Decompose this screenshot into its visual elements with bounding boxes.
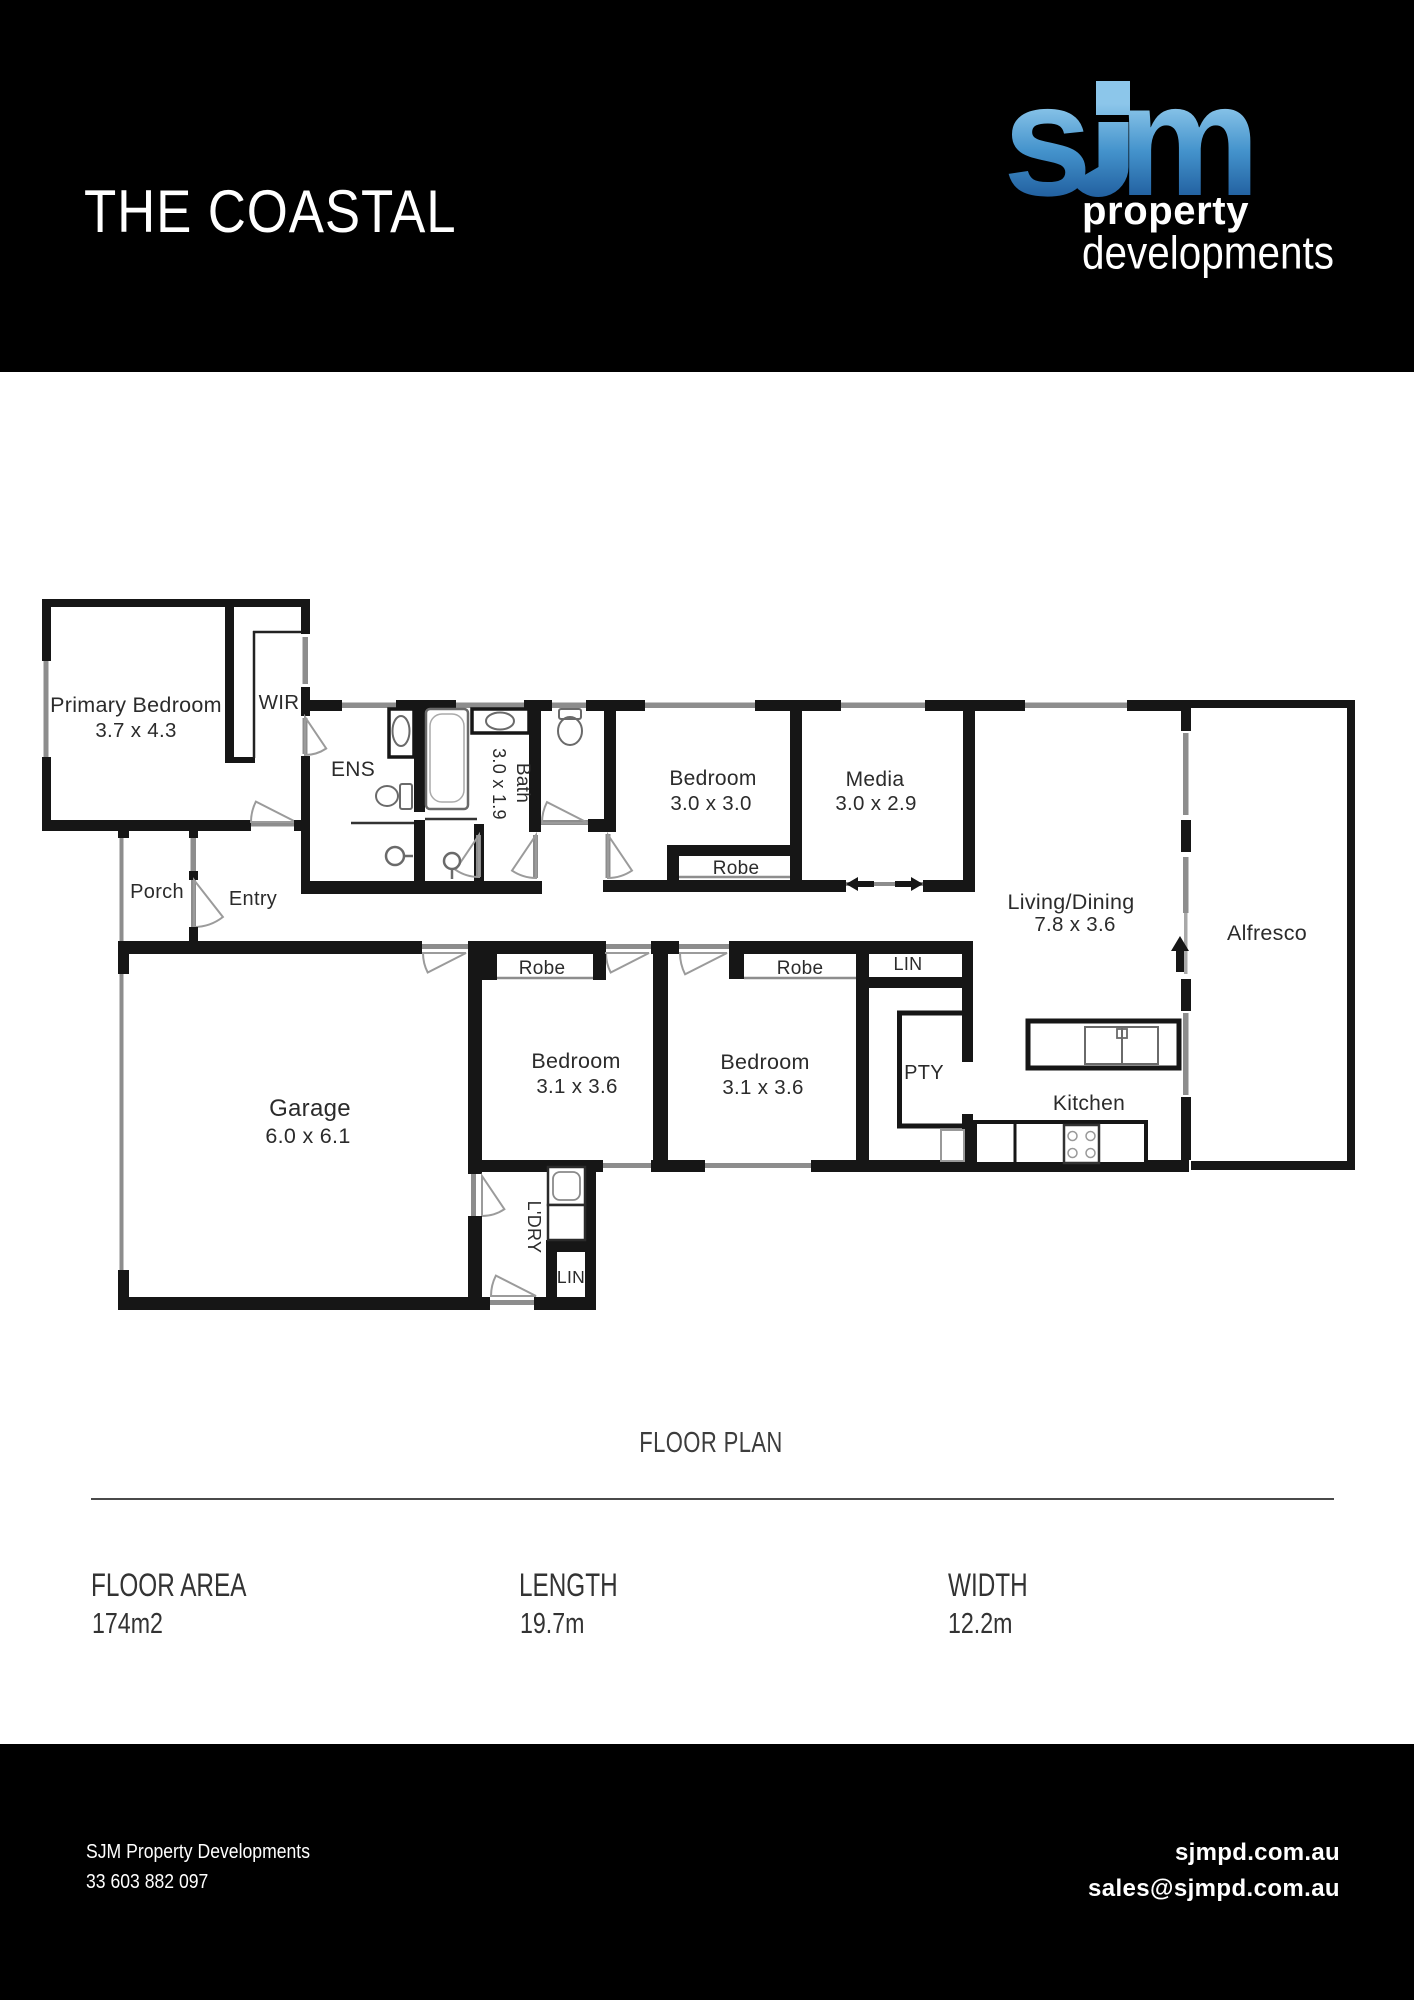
svg-text:WIR: WIR bbox=[259, 691, 300, 714]
svg-text:Alfresco: Alfresco bbox=[1227, 921, 1307, 945]
svg-text:3.1 x 3.6: 3.1 x 3.6 bbox=[536, 1075, 617, 1098]
svg-text:Robe: Robe bbox=[777, 958, 824, 979]
svg-text:Robe: Robe bbox=[713, 858, 760, 879]
svg-text:Entry: Entry bbox=[229, 888, 277, 910]
svg-text:Bath: Bath bbox=[512, 763, 533, 803]
svg-text:LIN: LIN bbox=[557, 1267, 585, 1287]
svg-text:Robe: Robe bbox=[519, 958, 566, 979]
svg-text:7.8 x 3.6: 7.8 x 3.6 bbox=[1034, 913, 1115, 936]
svg-text:Kitchen: Kitchen bbox=[1053, 1092, 1125, 1115]
svg-text:6.0 x 6.1: 6.0 x 6.1 bbox=[265, 1124, 350, 1148]
svg-text:3.7 x 4.3: 3.7 x 4.3 bbox=[95, 719, 176, 742]
svg-text:Living/Dining: Living/Dining bbox=[1008, 890, 1135, 914]
svg-text:L'DRY: L'DRY bbox=[524, 1201, 544, 1254]
svg-text:Garage: Garage bbox=[269, 1095, 351, 1122]
svg-text:3.0 x 1.9: 3.0 x 1.9 bbox=[489, 748, 509, 820]
svg-text:PTY: PTY bbox=[904, 1062, 944, 1084]
svg-text:3.0 x 2.9: 3.0 x 2.9 bbox=[835, 792, 916, 815]
svg-text:Bedroom: Bedroom bbox=[531, 1049, 620, 1073]
svg-text:ENS: ENS bbox=[331, 758, 375, 781]
svg-text:Media: Media bbox=[846, 768, 905, 791]
svg-text:Primary Bedroom: Primary Bedroom bbox=[50, 693, 222, 717]
svg-text:3.0 x 3.0: 3.0 x 3.0 bbox=[670, 792, 751, 815]
svg-text:Porch: Porch bbox=[130, 881, 184, 903]
svg-text:3.1 x 3.6: 3.1 x 3.6 bbox=[722, 1076, 803, 1099]
svg-text:Bedroom: Bedroom bbox=[669, 767, 756, 790]
svg-text:Bedroom: Bedroom bbox=[720, 1050, 809, 1074]
svg-text:LIN: LIN bbox=[894, 954, 923, 974]
